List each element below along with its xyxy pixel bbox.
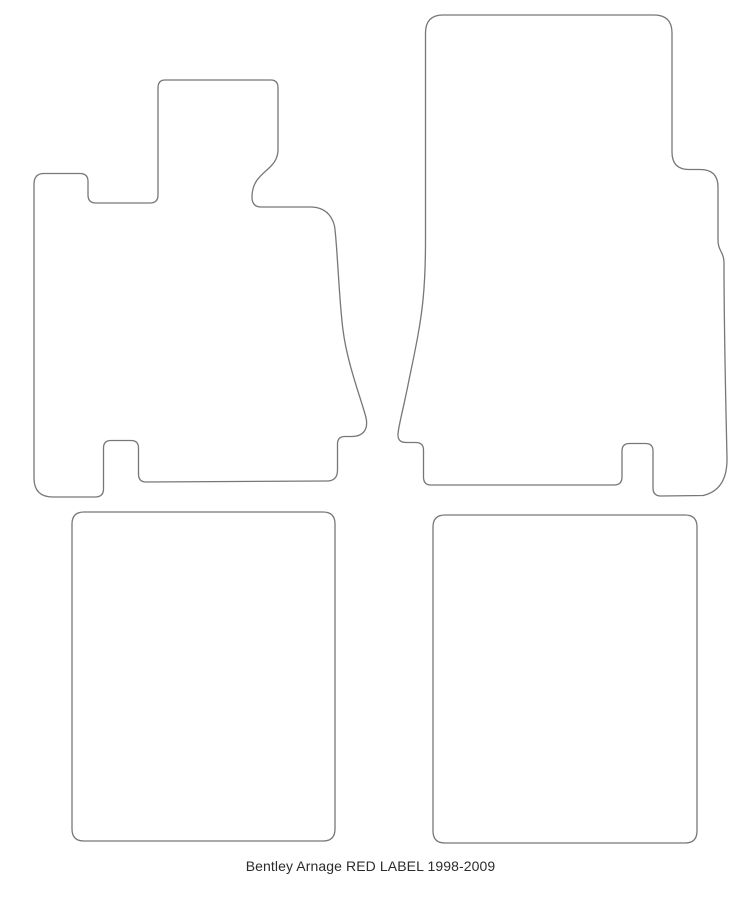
mat-outlines-group [34,15,727,843]
front-left-mat-outline [34,80,367,497]
front-right-mat-outline [398,15,727,496]
rear-right-mat-outline [433,515,697,843]
diagram-caption: Bentley Arnage RED LABEL 1998-2009 [0,858,741,875]
floor-mat-diagram [0,0,751,900]
mat-template-diagram-page: Bentley Arnage RED LABEL 1998-2009 [0,0,751,900]
rear-left-mat-outline [72,512,335,841]
